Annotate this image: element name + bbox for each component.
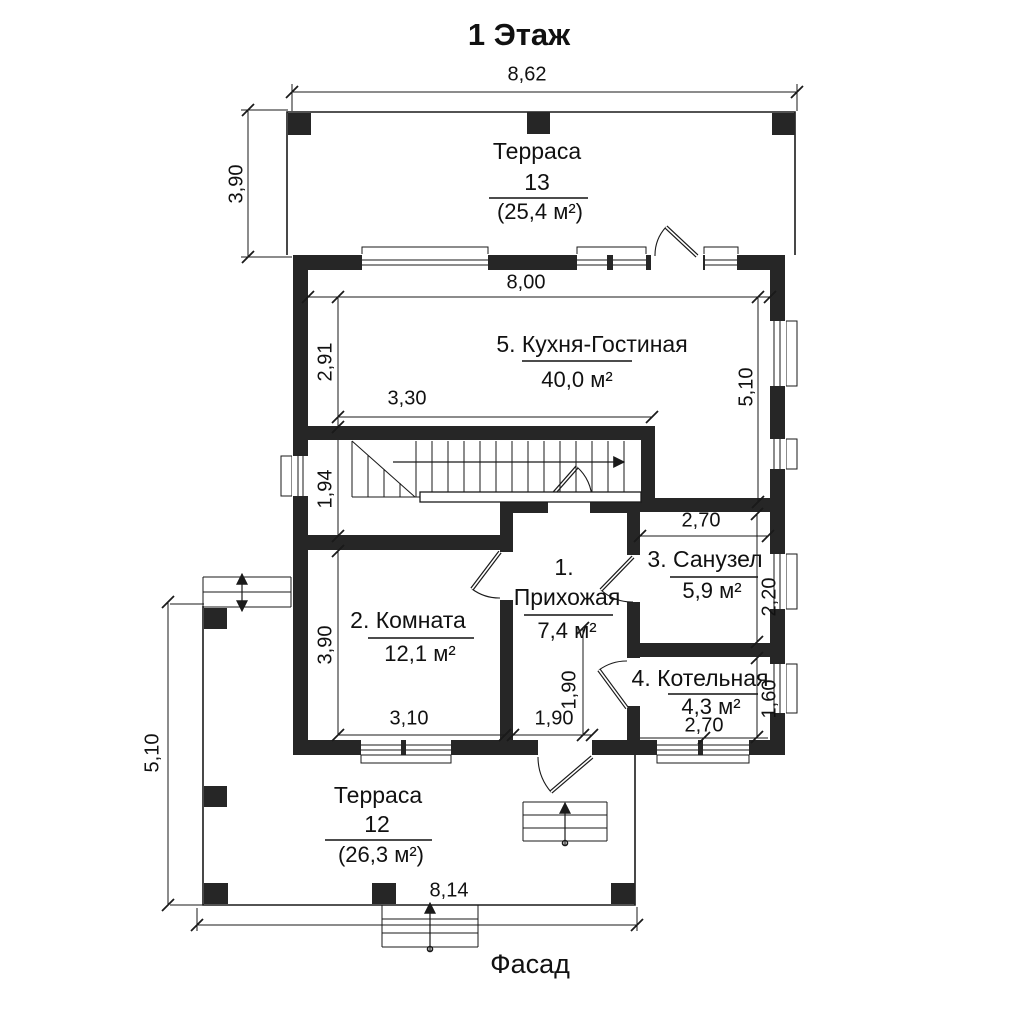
room-label: 2. Комната 12,1 м²	[350, 607, 474, 666]
dim-hallway-door-height-label: 1,90	[558, 671, 580, 710]
window-kitchen-right-2	[769, 435, 797, 473]
dim-room-width: 3,10	[338, 707, 511, 741]
dim-room-height: 3,90	[314, 545, 344, 741]
dim-stair-hall-height: 1,94	[314, 440, 344, 542]
hallway-left-wall-upper	[500, 513, 513, 552]
dim-bathroom-width: 2,70	[634, 509, 774, 542]
terrace13-column-right	[772, 113, 795, 135]
hallway-number: 1.	[554, 554, 573, 580]
window-kitchen-right-1	[769, 317, 797, 390]
page-title: 1 Этаж	[468, 17, 571, 52]
dim-bathroom-width-label: 2,70	[682, 509, 721, 531]
terrace13-column-middle	[527, 112, 550, 134]
dim-terrace13-depth: 3,90	[225, 104, 292, 263]
dim-stairs-width: 3,30	[332, 387, 658, 423]
dim-kitchen-left-height: 2,91	[314, 291, 344, 433]
hallway-right-wall-2	[627, 602, 640, 658]
dim-hallway-width-label: 1,90	[535, 707, 574, 729]
window-stair-hall-left	[281, 452, 309, 500]
dim-room-width-label: 3,10	[390, 707, 429, 729]
dim-stair-hall-height-label: 1,94	[314, 470, 336, 509]
dim-boiler-height-label: 1,60	[758, 680, 780, 719]
bathroom-label: 3. Санузел 5,9 м²	[647, 546, 762, 603]
bathroom-boiler-wall	[640, 643, 785, 657]
dim-boiler-width-label: 2,70	[685, 714, 724, 736]
stair-landing-edge	[420, 492, 641, 502]
dim-stairs-width-label: 3,30	[388, 387, 427, 409]
window-room-bottom	[357, 739, 455, 763]
left-wall	[293, 255, 308, 755]
dim-kitchen-width-label: 8,00	[507, 271, 546, 293]
dim-kitchen-width: 8,00	[302, 271, 776, 303]
kitchen-name: 5. Кухня-Гостиная	[496, 331, 687, 357]
hallway-left-wall-lower	[500, 600, 513, 740]
terrace12-name: Терраса	[334, 782, 422, 808]
terrace12-number: 12	[364, 811, 390, 837]
window-boiler-bottom	[653, 739, 753, 763]
terrace-door-steps	[523, 802, 607, 846]
door-terrace13	[651, 227, 703, 272]
floor-plan-drawing: 1 Этаж Терраса 13 (25,4 м²) Терраса 12 (…	[0, 0, 1024, 1024]
terrace12-column-1	[204, 608, 227, 629]
hallway-right-wall-1	[627, 500, 640, 555]
room-top-wall	[293, 535, 505, 550]
dim-total-width: 8,62	[286, 63, 803, 111]
floor-plan-page: 1 Этаж Терраса 13 (25,4 м²) Терраса 12 (…	[0, 0, 1024, 1024]
dim-terrace12-side-height: 5,10	[141, 596, 204, 911]
facade-steps	[382, 903, 478, 952]
terrace13-name: Терраса	[493, 138, 581, 164]
terrace12-column-4	[372, 883, 396, 904]
kitchen-label: 5. Кухня-Гостиная 40,0 м²	[496, 331, 687, 392]
window-kitchen-top-large	[358, 247, 492, 271]
dim-terrace13-depth-label: 3,90	[225, 165, 247, 204]
dim-facade-width-label: 8,14	[430, 879, 469, 901]
dim-kitchen-right-height: 5,10	[735, 291, 764, 508]
hallway-right-wall-3	[627, 706, 640, 740]
door-boiler	[599, 661, 627, 708]
boiler-name: 4. Котельная	[632, 665, 769, 691]
window-kitchen-top-small	[701, 247, 741, 271]
terrace12-column-2	[204, 786, 227, 807]
door-terrace12-exit	[538, 739, 592, 792]
dim-bathroom-height-label: 2,20	[758, 578, 780, 617]
terrace13-area: (25,4 м²)	[497, 199, 583, 224]
side-steps	[203, 574, 291, 611]
boiler-label: 4. Котельная 4,3 м²	[632, 665, 769, 719]
terrace-13: Терраса 13 (25,4 м²)	[287, 112, 795, 255]
hallway-name: Прихожая	[514, 584, 621, 610]
dim-kitchen-right-height-label: 5,10	[735, 368, 757, 407]
hallway-label: 1. Прихожая 7,4 м²	[514, 554, 621, 643]
room-name: 2. Комната	[350, 607, 466, 633]
dim-kitchen-left-height-label: 2,91	[314, 343, 336, 382]
terrace12-column-5	[611, 883, 635, 904]
kitchen-area: 40,0 м²	[541, 367, 612, 392]
facade-label: Фасад	[490, 949, 570, 979]
dim-room-height-label: 3,90	[314, 626, 336, 665]
terrace13-number: 13	[524, 169, 550, 195]
bathroom-name: 3. Санузел	[647, 546, 762, 572]
dim-terrace12-side-height-label: 5,10	[141, 734, 163, 773]
room-area: 12,1 м²	[384, 641, 455, 666]
window-kitchen-top-double	[573, 247, 650, 271]
terrace12-area: (26,3 м²)	[338, 842, 424, 867]
terrace13-column-left	[288, 113, 311, 135]
kitchen-stair-wall	[293, 426, 655, 440]
door-room	[472, 552, 500, 598]
dim-hallway-width: 1,90	[507, 707, 598, 741]
terrace12-column-3	[204, 883, 228, 904]
hallway-area: 7,4 м²	[537, 618, 596, 643]
dim-total-width-label: 8,62	[508, 63, 547, 85]
bathroom-area: 5,9 м²	[682, 578, 741, 603]
stairs	[352, 441, 641, 502]
